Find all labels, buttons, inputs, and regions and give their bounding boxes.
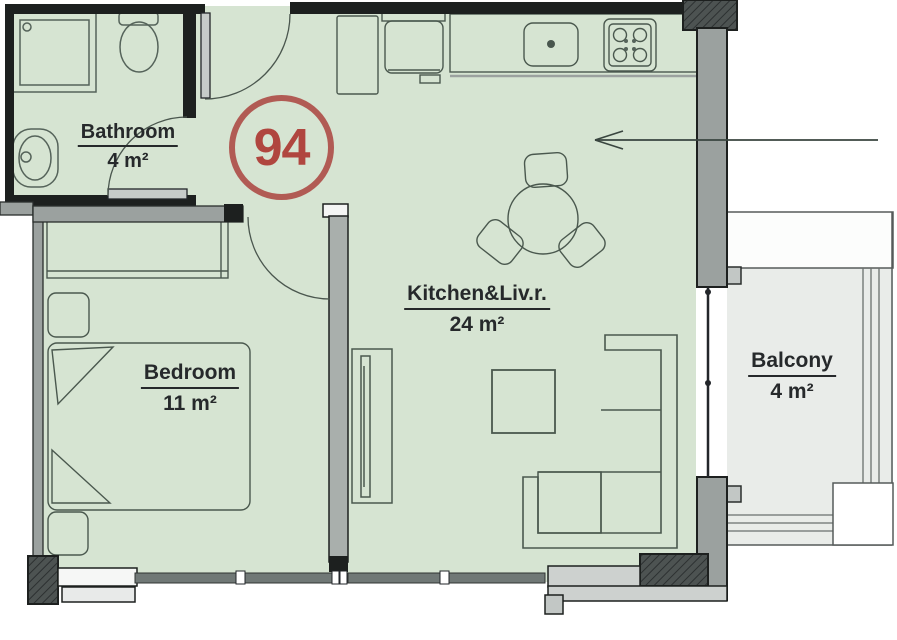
- balcony-top-slab: [727, 212, 893, 268]
- structural-column: [28, 556, 58, 604]
- window-mullion: [332, 571, 339, 584]
- windows: [135, 571, 545, 584]
- window-band: [135, 573, 333, 583]
- room-label-bedroom: Bedroom 11 m²: [141, 360, 239, 416]
- structural-column: [640, 554, 708, 586]
- wall-end-cap: [323, 204, 348, 217]
- room-name: Bedroom: [141, 360, 239, 389]
- window-mullion: [340, 571, 347, 584]
- room-name: Balcony: [748, 348, 836, 377]
- room-area: 4 m²: [78, 149, 178, 173]
- room-name: Kitchen&Liv.r.: [404, 281, 550, 310]
- room-label-bathroom: Bathroom 4 m²: [78, 120, 178, 174]
- room-name: Bathroom: [78, 120, 178, 147]
- window-mullion: [236, 571, 245, 584]
- partition-wall: [329, 216, 348, 562]
- room-label-balcony: Balcony 4 m²: [748, 348, 836, 404]
- room-area: 11 m²: [141, 391, 239, 417]
- unit-number-badge: 94: [229, 95, 334, 200]
- room-label-kitchen-living: Kitchen&Liv.r. 24 m²: [404, 281, 550, 337]
- floor-plan: Bathroom 4 m² Bedroom 11 m² Kitchen&Liv.…: [0, 0, 897, 640]
- balcony-corner-pier: [833, 483, 893, 545]
- balcony-sliding-door: [705, 287, 711, 477]
- structural-column: [683, 0, 737, 30]
- unit-number: 94: [254, 118, 310, 178]
- room-area: 24 m²: [404, 312, 550, 338]
- window-mullion: [440, 571, 449, 584]
- room-area: 4 m²: [748, 379, 836, 405]
